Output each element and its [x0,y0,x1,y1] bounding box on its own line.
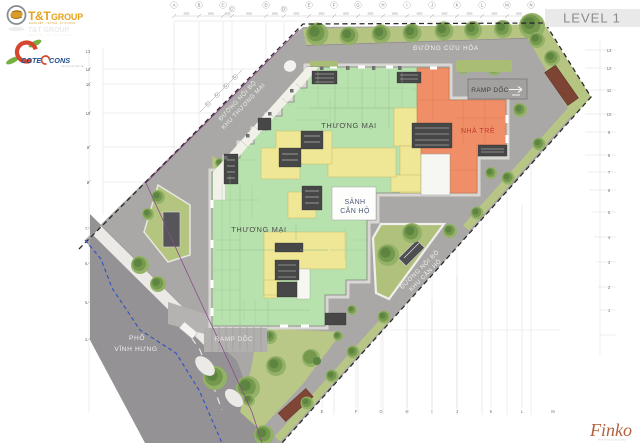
svg-text:A: A [173,3,176,8]
svg-text:H: H [381,3,384,8]
svg-text:T&T: T&T [28,9,51,23]
svg-text:12: 12 [607,66,612,71]
svg-text:C': C' [230,7,234,12]
svg-text:3600: 3600 [294,12,300,16]
svg-text:3600: 3600 [319,12,325,16]
svg-text:E: E [321,409,324,414]
svg-text:3600: 3600 [272,12,278,16]
svg-text:13: 13 [607,48,612,53]
svg-text:3600: 3600 [467,12,473,16]
svg-text:4: 4 [608,235,611,240]
svg-text:3600: 3600 [492,12,498,16]
svg-text:13: 13 [86,49,91,54]
svg-text:3600: 3600 [343,12,349,16]
svg-text:1: 1 [608,308,611,313]
svg-text:VĨNH HƯNG: VĨNH HƯNG [114,344,157,353]
svg-text:GROUP: GROUP [51,12,83,22]
svg-text:C: C [221,3,224,8]
svg-text:D: D [264,3,267,8]
svg-text:9: 9 [87,145,90,150]
svg-text:SẢNH: SẢNH [344,197,365,206]
svg-text:9: 9 [608,130,611,135]
svg-text:THƯƠNG MẠI: THƯƠNG MẠI [231,225,287,234]
svg-text:3600: 3600 [368,12,374,16]
svg-text:THƯƠNG MẠI: THƯƠNG MẠI [321,121,377,130]
svg-text:K: K [456,3,459,8]
svg-text:7: 7 [85,226,88,231]
svg-text:8: 8 [87,180,90,185]
svg-text:3: 3 [608,260,611,265]
svg-text:M: M [551,409,555,414]
svg-text:5: 5 [608,210,611,215]
svg-text:E: E [308,3,311,8]
svg-text:10: 10 [86,111,91,116]
svg-text:Finko: Finko [589,420,632,440]
svg-text:J: J [456,409,458,414]
svg-text:6: 6 [85,261,88,266]
svg-text:H: H [405,409,408,414]
svg-text:M: M [505,3,509,8]
svg-text:5: 5 [85,300,88,305]
svg-text:LEVEL 1: LEVEL 1 [563,11,621,26]
svg-text:F: F [333,3,336,8]
svg-text:xây dựng từ niềm tin: xây dựng từ niềm tin [61,65,85,68]
svg-text:G: G [379,409,382,414]
svg-text:2: 2 [608,285,611,290]
svg-text:3600: 3600 [246,12,252,16]
svg-text:G: G [356,3,359,8]
svg-text:N: N [529,3,532,8]
svg-text:4: 4 [85,337,88,342]
svg-text:CONS: CONS [49,56,70,65]
svg-text:L: L [521,409,524,414]
svg-text:3600: 3600 [184,12,190,16]
svg-text:K: K [490,409,493,414]
svg-text:B: B [198,3,201,8]
svg-text:3600: 3600 [442,12,448,16]
svg-text:S4: S4 [233,75,237,79]
svg-text:3600: 3600 [225,12,231,16]
svg-text:3600: 3600 [208,12,214,16]
svg-text:12: 12 [86,67,91,72]
svg-text:L: L [481,3,484,8]
svg-text:3600: 3600 [417,12,423,16]
svg-text:11: 11 [607,88,612,93]
svg-text:COTE: COTE [21,56,42,65]
svg-text:7: 7 [608,170,611,175]
svg-text:F: F [355,409,358,414]
svg-text:ĐƯỜNG CỨU HỎA: ĐƯỜNG CỨU HỎA [413,45,479,52]
svg-text:K2: K2 [215,93,219,97]
svg-text:8: 8 [608,153,611,158]
svg-text:NHÀ TRẺ: NHÀ TRẺ [461,126,495,135]
svg-text:K3: K3 [224,84,228,88]
svg-text:CĂN HỘ: CĂN HỘ [340,206,370,215]
svg-text:ĐOÀN KẾT · TRÍ TUỆ · KỶ CƯƠNG: ĐOÀN KẾT · TRÍ TUỆ · KỶ CƯƠNG [29,32,75,37]
svg-text:D': D' [282,7,286,12]
svg-text:3600: 3600 [516,12,522,16]
svg-text:J: J [431,3,433,8]
svg-text:10: 10 [607,112,612,117]
svg-text:6: 6 [608,188,611,193]
svg-text:thiet ke boi cong ty finko: thiet ke boi cong ty finko [598,438,626,442]
svg-text:11: 11 [86,82,91,87]
svg-text:I: I [406,3,407,8]
svg-text:I: I [431,409,432,414]
svg-text:3600: 3600 [392,12,398,16]
